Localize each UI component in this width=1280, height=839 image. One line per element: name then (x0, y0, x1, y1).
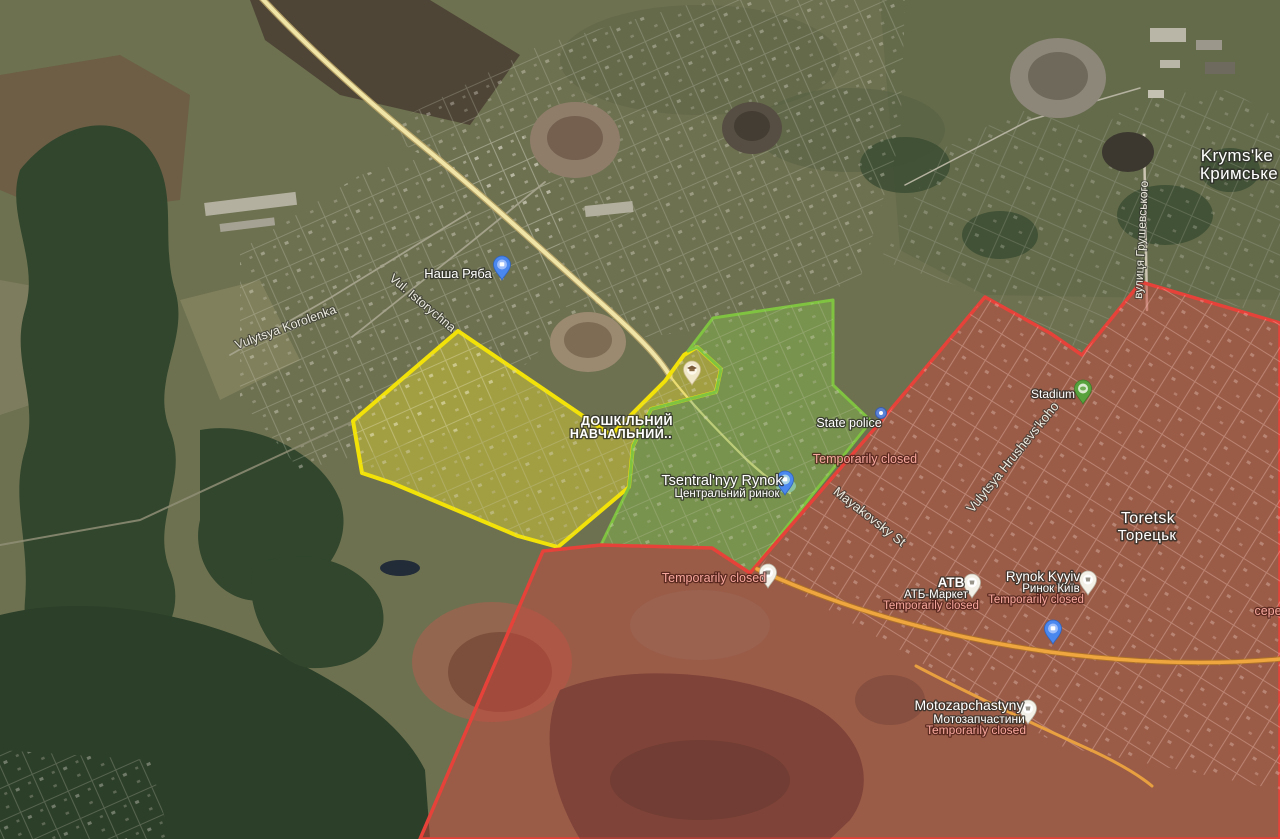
map-canvas: Kryms'ke Кримське Toretsk Торецьк Vulyts… (0, 0, 1280, 839)
state-police-icon-dot (879, 411, 883, 415)
closed-label-atb: Temporarily closed (883, 600, 979, 612)
closed-label-state-police: Temporarily closed (813, 452, 917, 466)
poi-label-moto[interactable]: Motozapchastyny (915, 697, 1024, 713)
city-label-krymske-latin[interactable]: Kryms'ke (1201, 146, 1274, 165)
poi-label-rynok-cyr[interactable]: Центральний ринок (674, 488, 780, 500)
poi-label-stadium[interactable]: Stadium (1031, 387, 1075, 401)
poi-label-rynok-kyyiv[interactable]: Rynok Kyyiv (1006, 569, 1081, 584)
poi-label-school-line2[interactable]: НАВЧАЛЬНИЙ.. (570, 426, 672, 441)
poi-label-atb[interactable]: ATB (938, 575, 965, 590)
edge-label-fragment: сере (1254, 604, 1280, 618)
city-label-krymske-cyr[interactable]: Кримське (1200, 164, 1278, 183)
city-label-toretsk-cyr[interactable]: Торецьк (1118, 527, 1177, 544)
satellite-map[interactable]: Kryms'ke Кримське Toretsk Торецьк Vulyts… (0, 0, 1280, 839)
closed-label-moto: Temporarily closed (926, 723, 1026, 737)
poi-label-state-police[interactable]: State police (816, 416, 881, 430)
poi-label-nasha-ryaba[interactable]: Наша Ряба (424, 266, 492, 281)
closed-label-standalone: Temporarily closed (662, 571, 766, 585)
poi-label-rynok-latin[interactable]: Tsentral'nyy Rynok (661, 473, 783, 489)
closed-label-rynok-kyyiv: Temporarily closed (988, 594, 1084, 606)
poi-label-school-line1[interactable]: ДОШКІЛЬНИЙ (581, 413, 673, 428)
city-label-toretsk-latin[interactable]: Toretsk (1121, 510, 1176, 527)
